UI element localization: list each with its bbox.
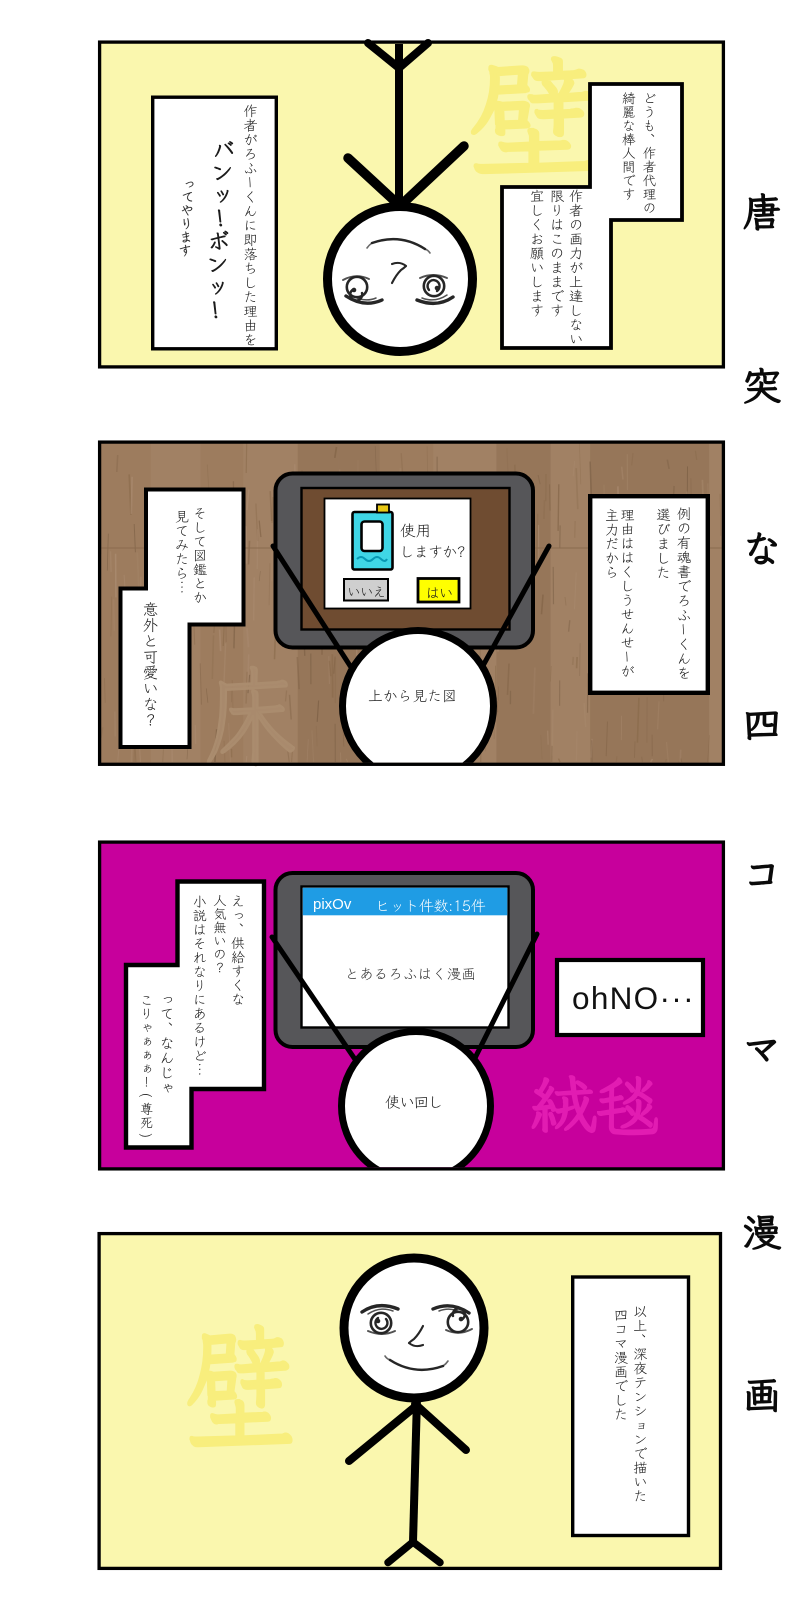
- svg-text:pixOv: pixOv: [313, 896, 352, 913]
- svg-text:ohNO···: ohNO···: [572, 980, 695, 1016]
